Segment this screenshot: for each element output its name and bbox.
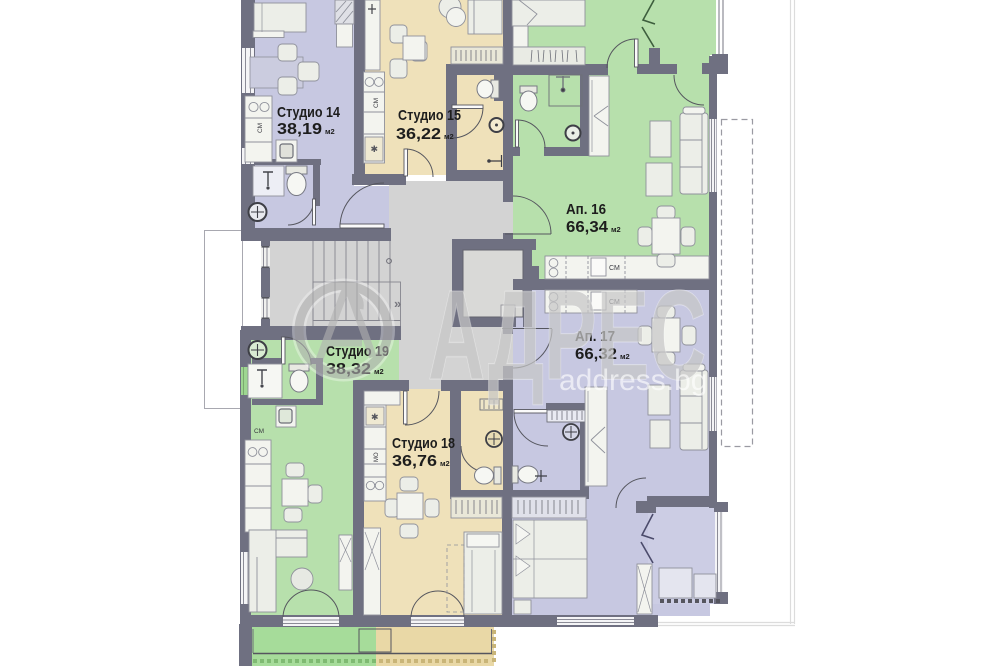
svg-text:✱: ✱: [371, 412, 379, 422]
svg-text:СМ: СМ: [257, 123, 264, 133]
svg-text:м2: м2: [325, 127, 335, 136]
svg-text:address.bg: address.bg: [559, 364, 707, 397]
svg-text:м2: м2: [444, 132, 454, 141]
svg-text:»: »: [394, 296, 401, 311]
svg-text:м2: м2: [611, 225, 621, 234]
svg-text:СМ: СМ: [254, 428, 264, 435]
svg-text:м2: м2: [440, 459, 450, 468]
svg-text:66,34: 66,34: [566, 219, 608, 236]
svg-text:Студио 18: Студио 18: [392, 435, 455, 452]
svg-text:Ап. 16: Ап. 16: [566, 201, 606, 218]
svg-text:СМ: СМ: [373, 98, 380, 108]
svg-text:38,19: 38,19: [277, 121, 322, 138]
svg-text:36,22: 36,22: [396, 126, 441, 143]
svg-text:Студио 14: Студио 14: [277, 104, 341, 121]
svg-text:36,76: 36,76: [392, 453, 437, 470]
svg-text:✱: ✱: [371, 144, 379, 154]
svg-text:МО: МО: [374, 452, 380, 462]
svg-text:Студио 15: Студио 15: [398, 107, 461, 124]
